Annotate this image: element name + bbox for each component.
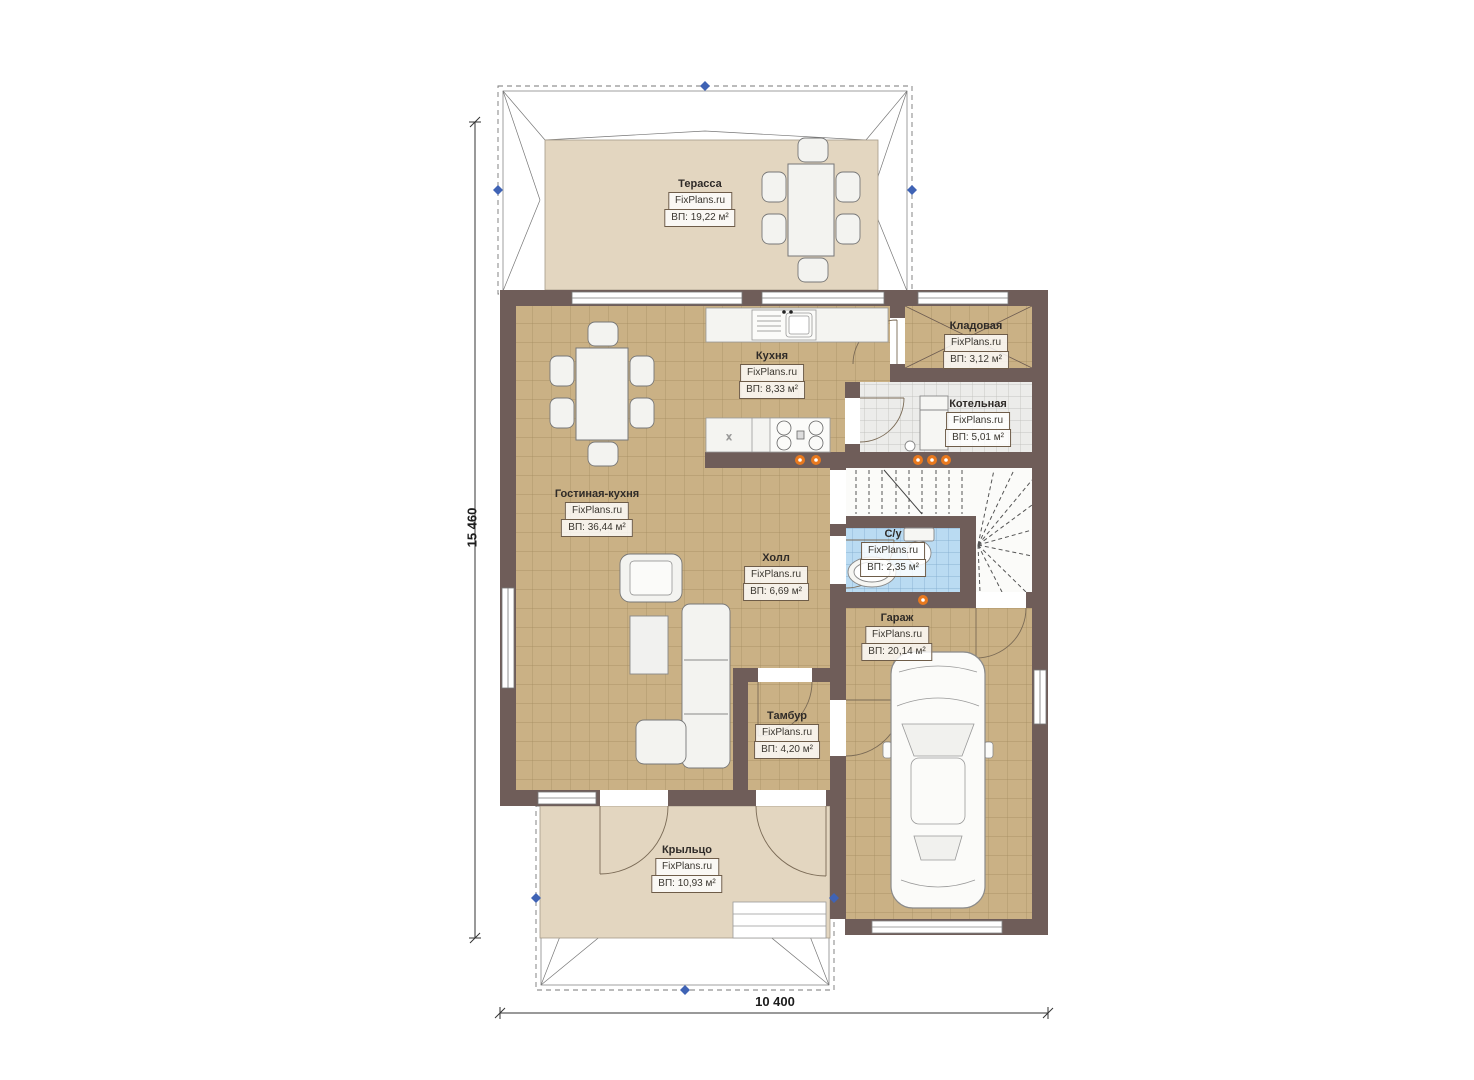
room-area: ВП: 4,20 м² — [754, 741, 820, 759]
orange-dot — [913, 455, 923, 465]
orange-dot — [918, 595, 928, 605]
orange-dot — [927, 455, 937, 465]
floor-plan-page: x — [0, 0, 1474, 1080]
blue-marker — [700, 81, 710, 91]
room-area: ВП: 2,35 м² — [860, 559, 926, 577]
room-label-garage: Гараж FixPlans.ru ВП: 20,14 м² — [861, 612, 932, 661]
room-area: ВП: 8,33 м² — [739, 381, 805, 399]
room-area: ВП: 19,22 м² — [664, 209, 735, 227]
window — [572, 292, 742, 304]
room-label-boiler: Котельная FixPlans.ru ВП: 5,01 м² — [945, 398, 1011, 447]
room-brand: FixPlans.ru — [946, 412, 1010, 430]
room-area: ВП: 36,44 м² — [561, 519, 632, 537]
orange-dot — [941, 455, 951, 465]
room-area: ВП: 6,69 м² — [743, 583, 809, 601]
room-name: С/у — [884, 528, 901, 540]
room-label-terrace: Терасса FixPlans.ru ВП: 19,22 м² — [664, 178, 735, 227]
room-area: ВП: 10,93 м² — [651, 875, 722, 893]
stove — [770, 418, 830, 452]
room-brand: FixPlans.ru — [944, 334, 1008, 352]
room-area: ВП: 3,12 м² — [943, 351, 1009, 369]
room-brand: FixPlans.ru — [865, 626, 929, 644]
room-label-vestibule: Тамбур FixPlans.ru ВП: 4,20 м² — [754, 710, 820, 759]
room-brand: FixPlans.ru — [740, 364, 804, 382]
room-brand: FixPlans.ru — [744, 566, 808, 584]
armchair — [620, 554, 682, 602]
room-name: Кладовая — [950, 320, 1003, 332]
room-name: Кухня — [756, 350, 788, 362]
room-name: Гостиная-кухня — [555, 488, 639, 500]
room-label-storage: Кладовая FixPlans.ru ВП: 3,12 м² — [943, 320, 1009, 369]
orange-dot — [795, 455, 805, 465]
floor-plan-canvas: x — [0, 0, 1474, 1080]
window — [918, 292, 1008, 304]
room-area: ВП: 20,14 м² — [861, 643, 932, 661]
room-brand: FixPlans.ru — [668, 192, 732, 210]
dimension-label-horizontal: 10 400 — [725, 994, 825, 1009]
coffee-table — [630, 616, 668, 674]
room-label-porch: Крыльцо FixPlans.ru ВП: 10,93 м² — [651, 844, 722, 893]
window — [502, 588, 514, 688]
kitchen-sink-counter — [706, 308, 888, 342]
room-label-living: Гостиная-кухня FixPlans.ru ВП: 36,44 м² — [555, 488, 639, 537]
room-name: Холл — [762, 552, 790, 564]
window — [1034, 670, 1046, 724]
room-area: ВП: 5,01 м² — [945, 429, 1011, 447]
cabinet-mark: x — [727, 432, 732, 443]
car — [883, 652, 993, 908]
stove-counter: x — [706, 418, 830, 452]
room-name: Гараж — [881, 612, 914, 624]
room-brand: FixPlans.ru — [655, 858, 719, 876]
orange-dot — [811, 455, 821, 465]
room-brand: FixPlans.ru — [861, 542, 925, 560]
garage-door — [872, 921, 1002, 933]
blue-marker — [531, 893, 541, 903]
room-name: Котельная — [949, 398, 1007, 410]
blue-marker — [493, 185, 503, 195]
room-name: Терасса — [678, 178, 722, 190]
window — [538, 792, 596, 804]
room-label-hall: Холл FixPlans.ru ВП: 6,69 м² — [743, 552, 809, 601]
blue-marker — [907, 185, 917, 195]
room-brand: FixPlans.ru — [565, 502, 629, 520]
room-name: Крыльцо — [662, 844, 712, 856]
blue-marker — [680, 985, 690, 995]
window — [762, 292, 884, 304]
room-brand: FixPlans.ru — [755, 724, 819, 742]
porch-steps — [733, 902, 826, 938]
dimension-label-vertical: 15 460 — [465, 493, 480, 563]
room-label-bathroom: С/у FixPlans.ru ВП: 2,35 м² — [860, 528, 926, 577]
room-label-kitchen: Кухня FixPlans.ru ВП: 8,33 м² — [739, 350, 805, 399]
room-name: Тамбур — [767, 710, 807, 722]
